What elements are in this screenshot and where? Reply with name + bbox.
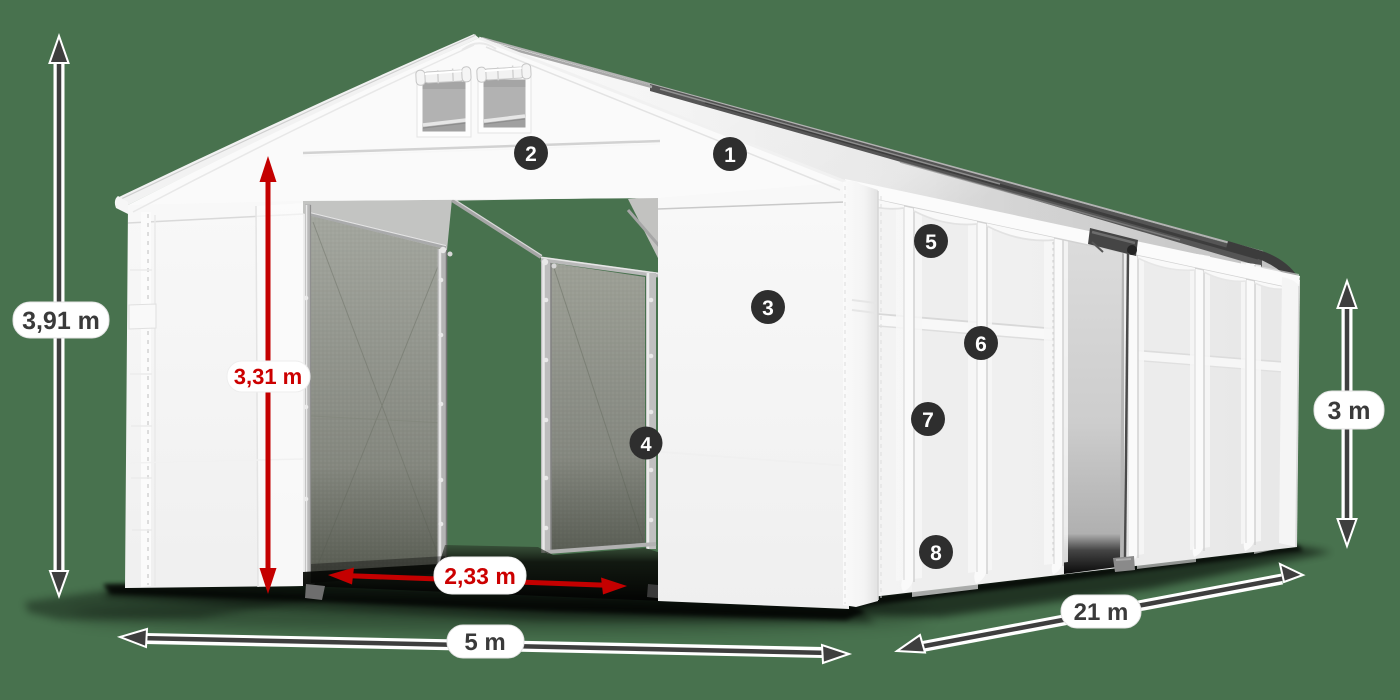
svg-text:2: 2 [525, 143, 537, 166]
svg-text:3,91 m: 3,91 m [22, 307, 100, 335]
svg-text:3,31 m: 3,31 m [234, 364, 303, 389]
svg-text:5: 5 [925, 231, 937, 254]
svg-text:3 m: 3 m [1327, 397, 1370, 425]
svg-text:21 m: 21 m [1074, 599, 1129, 626]
svg-text:1: 1 [724, 144, 736, 167]
svg-text:4: 4 [640, 434, 652, 456]
svg-text:5 m: 5 m [464, 629, 505, 656]
svg-text:6: 6 [975, 333, 987, 356]
svg-text:3: 3 [762, 297, 774, 320]
svg-text:7: 7 [922, 409, 934, 432]
svg-text:8: 8 [930, 542, 942, 565]
svg-text:2,33 m: 2,33 m [444, 563, 516, 589]
